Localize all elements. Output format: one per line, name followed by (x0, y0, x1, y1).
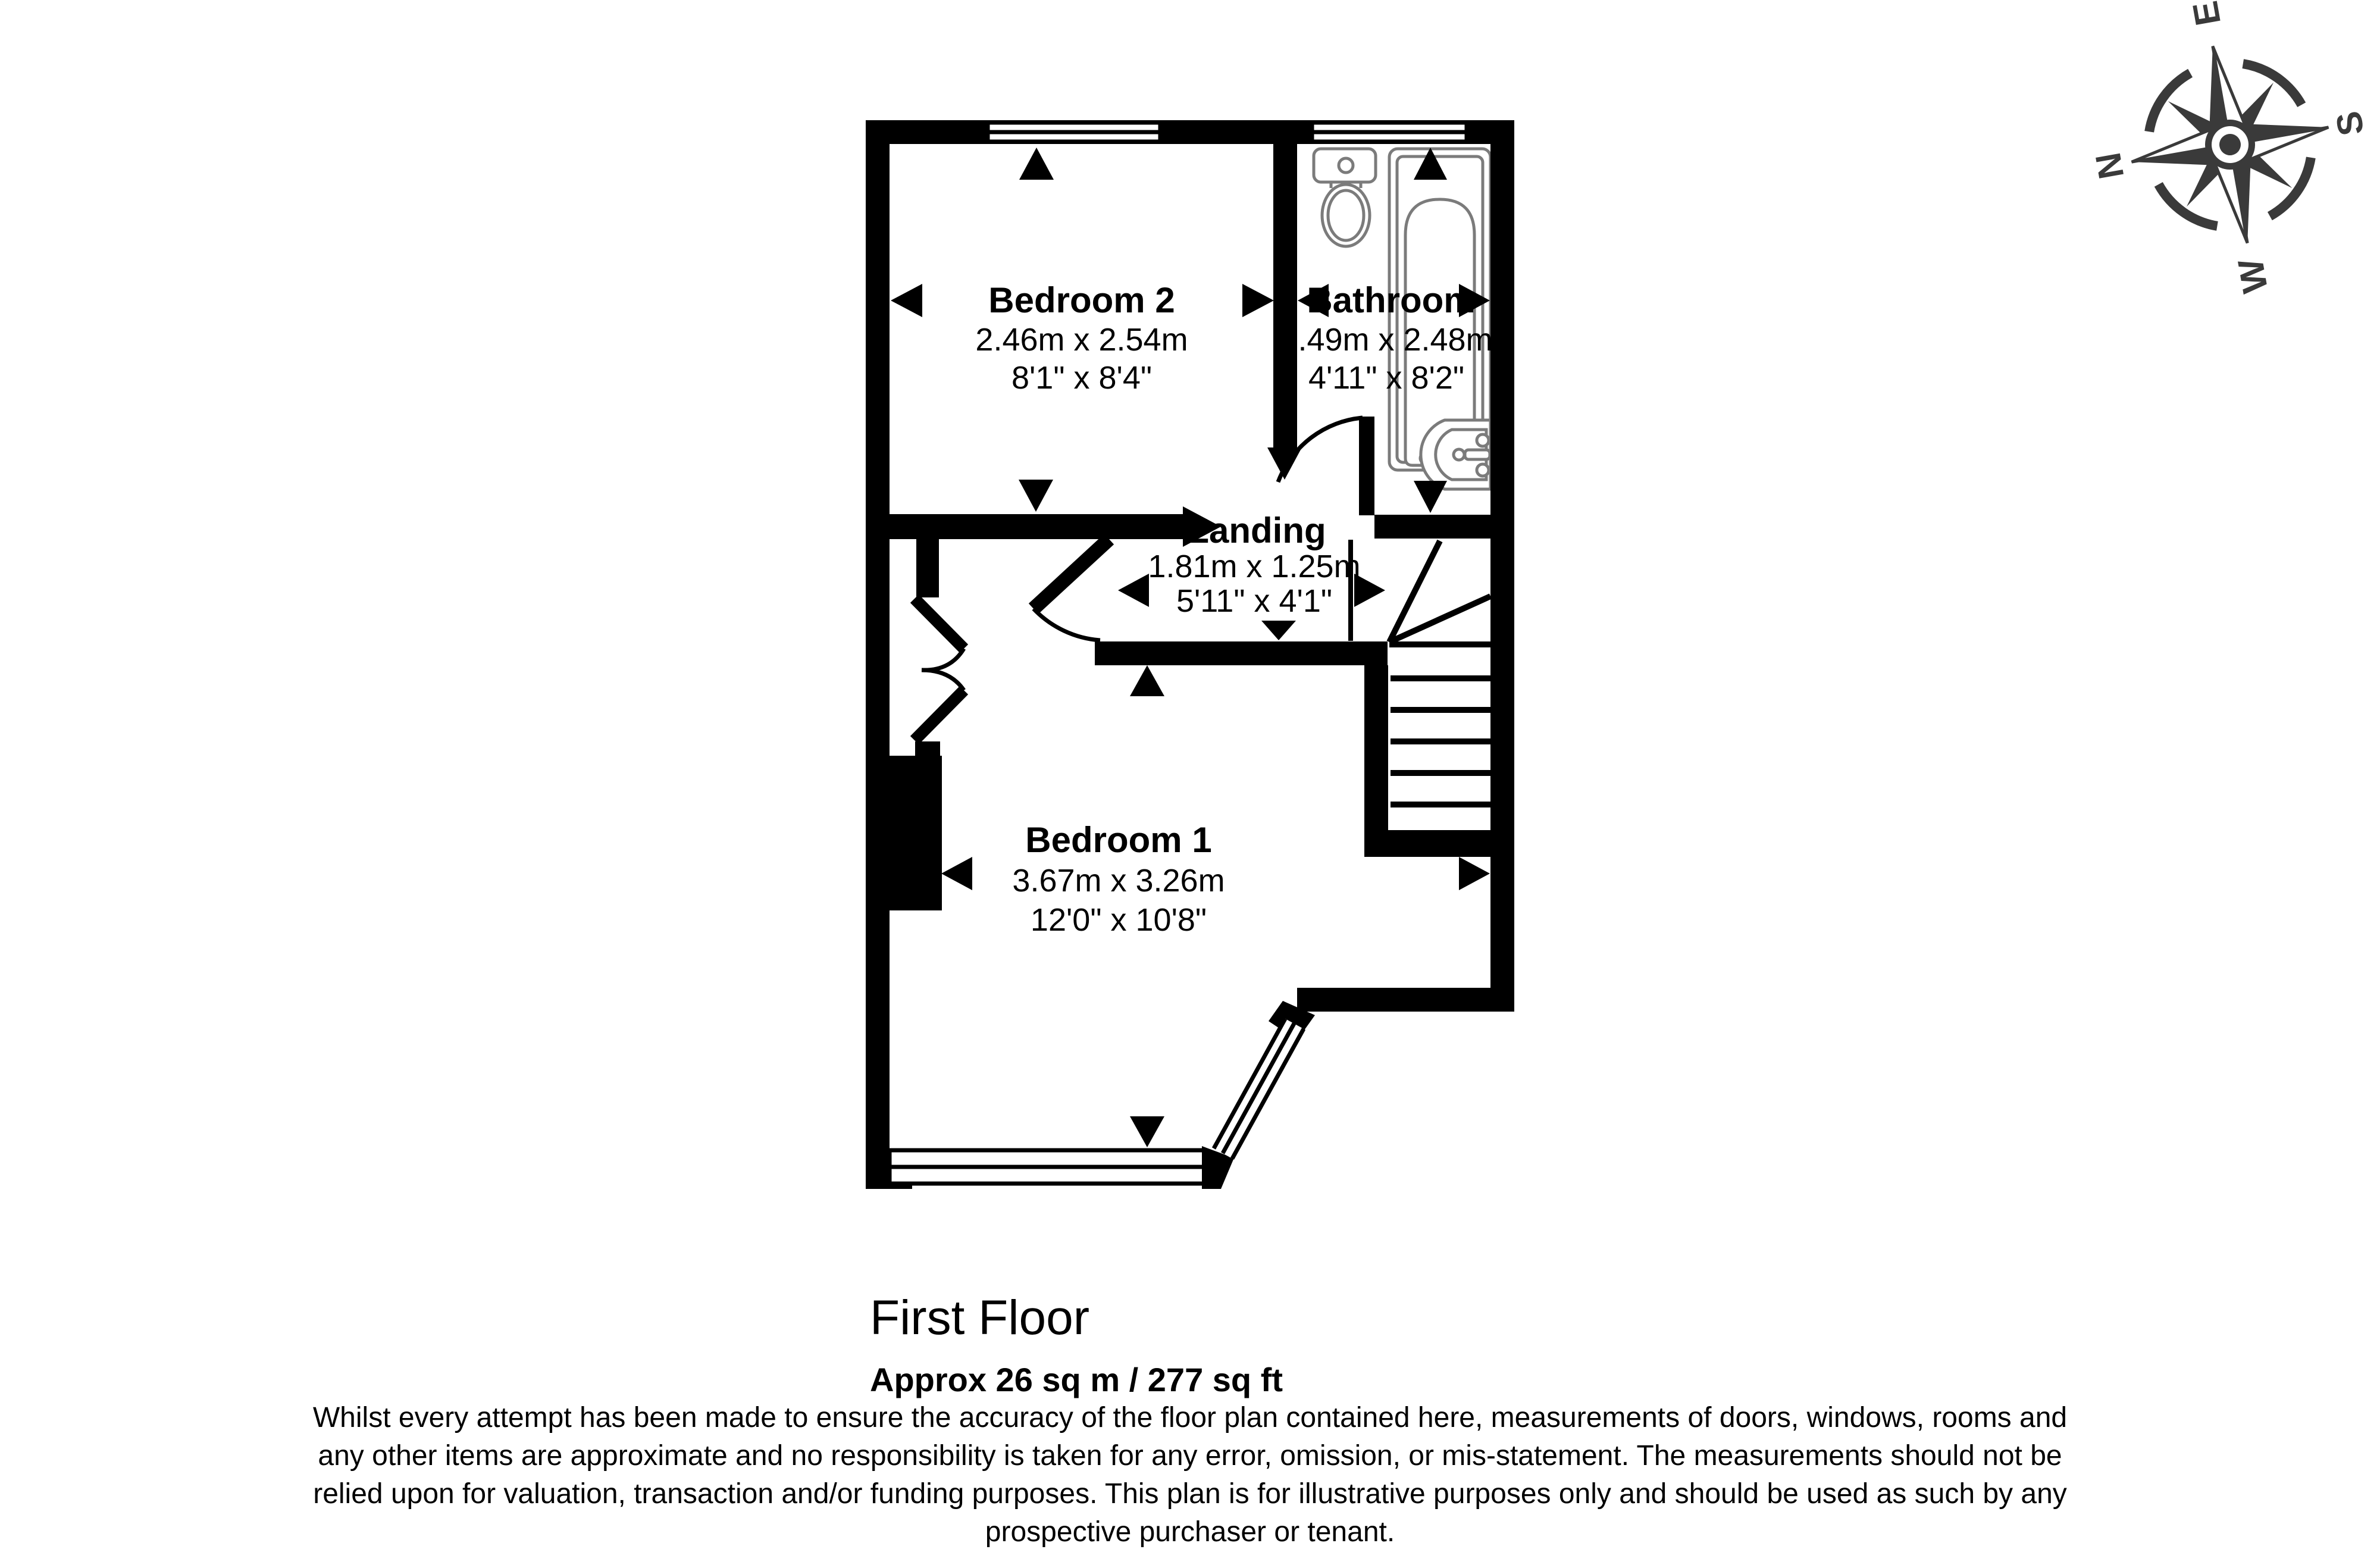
wall-right (1490, 120, 1514, 1012)
disclaimer-line: any other items are approximate and no r… (318, 1440, 2062, 1472)
wall-left (866, 120, 890, 1189)
room-name: Bathroom (1307, 280, 1475, 320)
disclaimer-line: relied upon for valuation, transaction a… (313, 1478, 2067, 1510)
room-name: Bedroom 2 (988, 280, 1175, 320)
room-dim-metric: 3.67m x 3.26m (1012, 863, 1225, 899)
floor-title: First Floor (870, 1291, 1089, 1345)
room-dim-imperial: 12'0" x 10'8" (1031, 902, 1207, 938)
room-dim-imperial: 5'11" x 4'1" (1176, 583, 1332, 619)
wall-bedroom1-bottom-right (1297, 988, 1514, 1012)
disclaimer-line: Whilst every attempt has been made to en… (313, 1402, 2067, 1433)
window-bay-front (890, 1148, 1202, 1185)
wall-bathroom-bottom (1374, 515, 1514, 539)
wall-bedroom2-bathroom-divider (1273, 144, 1297, 447)
wall-bedroom2-bottom (866, 514, 1184, 539)
room-dim-imperial: 4'11" x 8'2" (1308, 360, 1464, 396)
chimney-breast (890, 756, 942, 910)
wall-landing-bottom (1095, 641, 1388, 665)
window-bathroom (1312, 121, 1467, 143)
window-bedroom2 (988, 121, 1160, 143)
page-background (0, 0, 2380, 1565)
wall-stairs-bottom (1364, 830, 1514, 857)
room-bedroom1-label: Bedroom 1 3.67m x 3.26m 12'0" x 10'8" (1012, 820, 1225, 938)
room-bathroom-label: Bathroom 1.49m x 2.48m 4'11" x 8'2" (1280, 280, 1492, 396)
compass-west-label: W (2230, 256, 2275, 296)
wall-closet-stub-top (916, 539, 939, 597)
room-dim-metric: 1.49m x 2.48m (1280, 322, 1492, 358)
room-name: Bedroom 1 (1025, 820, 1211, 860)
sink-icon (1421, 420, 1490, 489)
room-dim-metric: 2.46m x 2.54m (975, 322, 1188, 358)
room-dim-imperial: 8'1" x 8'4" (1011, 360, 1152, 396)
floor-area: Approx 26 sq m / 277 sq ft (870, 1361, 1283, 1398)
room-name: Landing (1187, 511, 1326, 550)
room-dim-metric: 1.81m x 1.25m (1148, 549, 1360, 584)
floor-plan-canvas: Bedroom 2 2.46m x 2.54m 8'1" x 8'4" Bath… (0, 0, 2380, 1565)
disclaimer-line: prospective purchaser or tenant. (985, 1516, 1395, 1548)
wall-stairs-left (1364, 665, 1388, 857)
